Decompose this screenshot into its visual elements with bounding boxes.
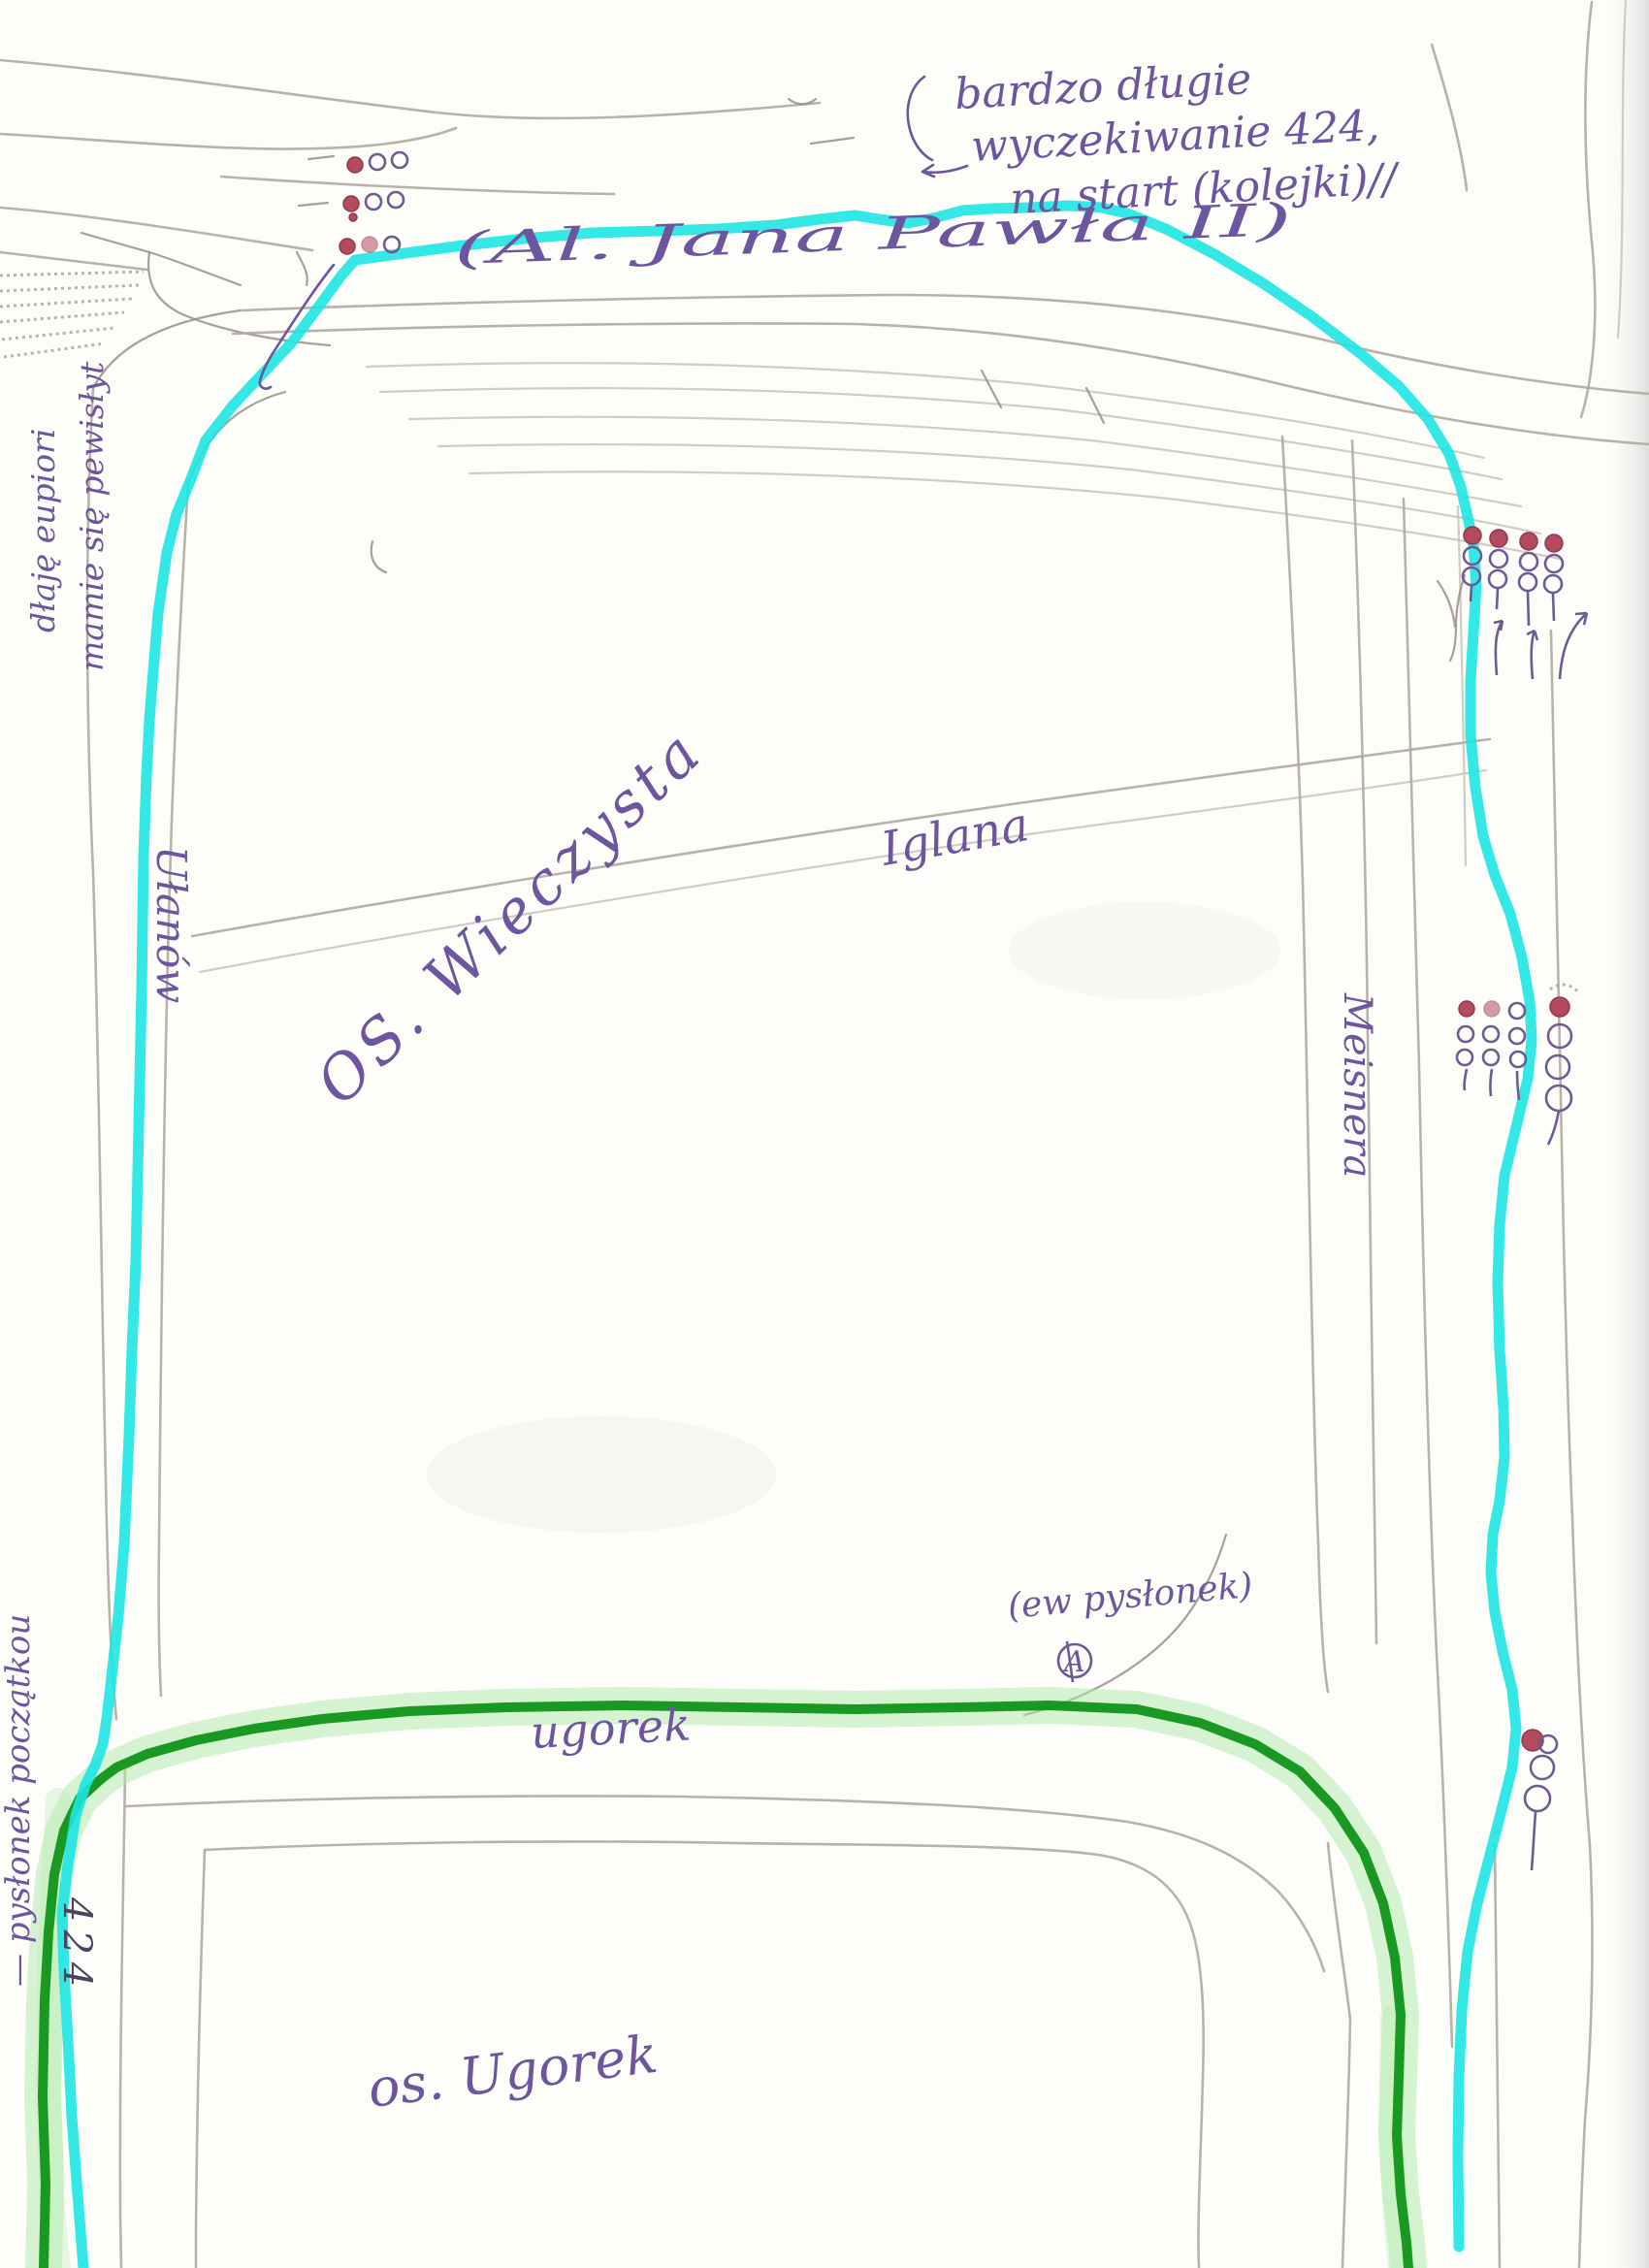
note-top-left-line2: mamie się pewisłyt — [73, 361, 111, 671]
note-top-left-line1: dłaję eupiori — [24, 429, 62, 632]
paper-smudge — [427, 1416, 776, 1533]
street-label-ugorek: ugorek — [530, 1698, 693, 1759]
scanned-paper-page: A bardzo długie wyczekiwanie 424, na sta… — [0, 0, 1649, 2268]
route-sketch-map: A bardzo długie wyczekiwanie 424, na sta… — [0, 0, 1649, 2268]
route-number-label: 424 — [54, 1896, 99, 1994]
street-label-ulanow: Ułanów — [147, 846, 195, 1003]
paper-smudge — [1009, 902, 1280, 999]
scan-edge-shadow — [1602, 0, 1649, 2268]
street-label-meissnera: Meisnera — [1335, 992, 1379, 1178]
note-start-stop: — pysłonek początkou — [0, 1614, 38, 1987]
marker-a-label: A — [1061, 1645, 1085, 1679]
